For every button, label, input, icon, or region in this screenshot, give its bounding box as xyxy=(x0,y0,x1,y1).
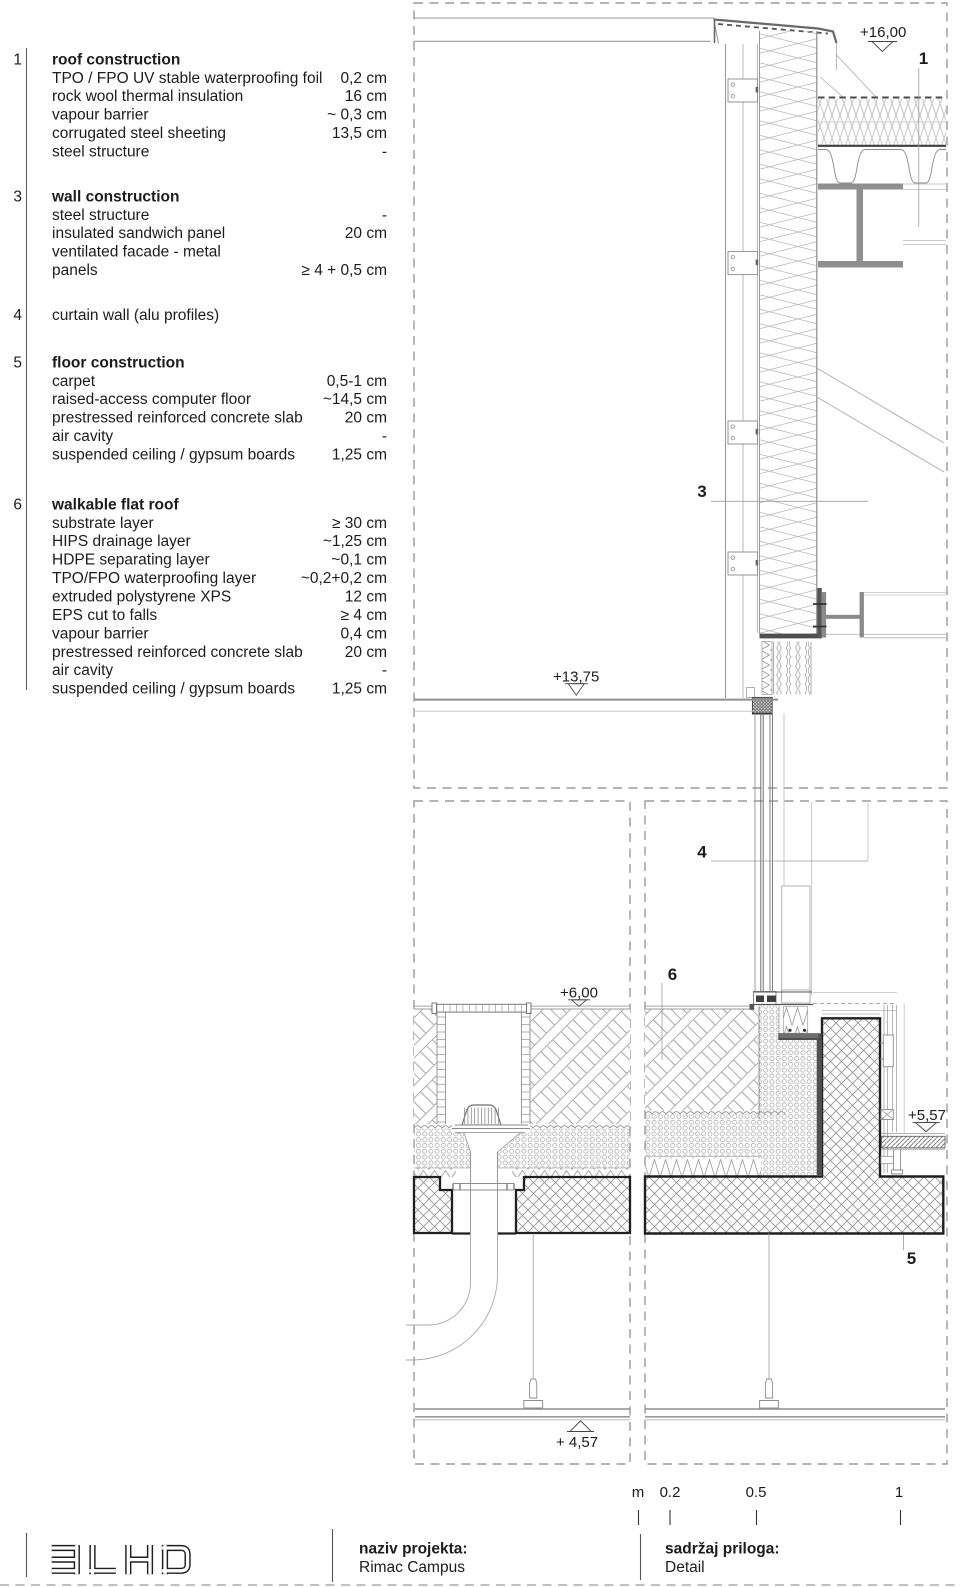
svg-text:suspended ceiling / gypsum boa: suspended ceiling / gypsum boards xyxy=(52,681,295,698)
svg-text:substrate layer: substrate layer xyxy=(52,515,154,532)
svg-text:sadržaj priloga:: sadržaj priloga: xyxy=(665,1541,780,1558)
svg-text:m: m xyxy=(632,1484,645,1501)
svg-text:~ 0,3 cm: ~ 0,3 cm xyxy=(327,107,387,124)
svg-text:+6,00: +6,00 xyxy=(560,985,598,1002)
svg-text:raised-access computer floor: raised-access computer floor xyxy=(52,391,251,408)
svg-text:4: 4 xyxy=(697,843,707,862)
svg-text:+13,75: +13,75 xyxy=(553,669,599,686)
svg-text:floor construction: floor construction xyxy=(52,354,185,371)
svg-text:air cavity: air cavity xyxy=(52,662,113,679)
svg-text:HIPS drainage layer: HIPS drainage layer xyxy=(52,533,191,550)
svg-text:20 cm: 20 cm xyxy=(345,644,387,661)
svg-text:5: 5 xyxy=(907,1249,916,1268)
svg-text:0,5-1 cm: 0,5-1 cm xyxy=(327,373,387,390)
svg-text:6: 6 xyxy=(668,965,677,984)
svg-text:vapour barrier: vapour barrier xyxy=(52,625,149,642)
svg-text:roof construction: roof construction xyxy=(52,51,180,68)
svg-text:6: 6 xyxy=(13,496,22,513)
svg-text:prestressed reinforced concret: prestressed reinforced concrete slab xyxy=(52,644,303,661)
svg-text:-: - xyxy=(382,144,387,161)
svg-text:~14,5 cm: ~14,5 cm xyxy=(323,391,387,408)
svg-text:+5,57: +5,57 xyxy=(908,1107,946,1124)
svg-text:1,25 cm: 1,25 cm xyxy=(332,681,387,698)
svg-text:3: 3 xyxy=(697,482,706,501)
svg-text:wall construction: wall construction xyxy=(51,188,179,205)
svg-text:prestressed reinforced concret: prestressed reinforced concrete slab xyxy=(52,410,303,427)
svg-text:rock wool thermal insulation: rock wool thermal insulation xyxy=(52,88,243,105)
svg-text:+ 4,57: + 4,57 xyxy=(556,1434,598,1451)
svg-text:naziv projekta:: naziv projekta: xyxy=(359,1541,468,1558)
svg-text:12 cm: 12 cm xyxy=(345,589,387,606)
svg-text:1: 1 xyxy=(919,49,928,68)
svg-text:suspended ceiling / gypsum boa: suspended ceiling / gypsum boards xyxy=(52,447,295,464)
svg-text:~0,2+0,2 cm: ~0,2+0,2 cm xyxy=(301,570,387,587)
svg-text:~1,25 cm: ~1,25 cm xyxy=(323,533,387,550)
svg-text:walkable flat roof: walkable flat roof xyxy=(51,496,179,513)
svg-text:0.5: 0.5 xyxy=(746,1484,767,1501)
svg-text:-: - xyxy=(382,207,387,224)
svg-text:≥ 4 + 0,5 cm: ≥ 4 + 0,5 cm xyxy=(301,262,387,279)
svg-text:HDPE separating layer: HDPE separating layer xyxy=(52,552,210,569)
svg-text:20 cm: 20 cm xyxy=(345,410,387,427)
svg-text:insulated sandwich panel: insulated sandwich panel xyxy=(52,225,225,242)
svg-text:4: 4 xyxy=(13,307,22,324)
svg-text:5: 5 xyxy=(13,354,22,371)
svg-text:1,25 cm: 1,25 cm xyxy=(332,447,387,464)
svg-text:Detail: Detail xyxy=(665,1559,705,1576)
svg-text:+16,00: +16,00 xyxy=(860,24,906,41)
svg-text:0,2 cm: 0,2 cm xyxy=(340,70,387,87)
svg-text:3: 3 xyxy=(13,188,22,205)
svg-text:-: - xyxy=(382,662,387,679)
svg-text:0,4 cm: 0,4 cm xyxy=(340,625,387,642)
svg-text:20 cm: 20 cm xyxy=(345,225,387,242)
svg-text:TPO/FPO waterproofing layer: TPO/FPO waterproofing layer xyxy=(52,570,256,587)
svg-text:air cavity: air cavity xyxy=(52,428,113,445)
svg-text:-: - xyxy=(382,428,387,445)
svg-text:~0,1 cm: ~0,1 cm xyxy=(331,552,387,569)
svg-text:EPS cut to falls: EPS cut to falls xyxy=(52,607,157,624)
svg-text:vapour barrier: vapour barrier xyxy=(52,107,149,124)
svg-text:curtain wall (alu profiles): curtain wall (alu profiles) xyxy=(52,307,219,324)
svg-text:steel structure: steel structure xyxy=(52,207,149,224)
svg-text:≥ 30 cm: ≥ 30 cm xyxy=(332,515,387,532)
svg-text:Rimac Campus: Rimac Campus xyxy=(359,1559,465,1576)
svg-text:≥ 4 cm: ≥ 4 cm xyxy=(341,607,387,624)
svg-text:1: 1 xyxy=(13,51,22,68)
svg-text:carpet: carpet xyxy=(52,373,96,390)
svg-text:0.2: 0.2 xyxy=(660,1484,681,1501)
svg-text:corrugated steel sheeting: corrugated steel sheeting xyxy=(52,125,226,142)
svg-text:1: 1 xyxy=(895,1484,903,1501)
svg-text:16 cm: 16 cm xyxy=(345,88,387,105)
svg-text:ventilated facade - metal: ventilated facade - metal xyxy=(52,244,221,261)
svg-text:panels: panels xyxy=(52,262,98,279)
svg-text:extruded polystyrene XPS: extruded polystyrene XPS xyxy=(52,589,231,606)
svg-text:TPO / FPO UV stable waterproof: TPO / FPO UV stable waterproofing foil xyxy=(52,70,323,87)
svg-text:13,5 cm: 13,5 cm xyxy=(332,125,387,142)
svg-text:steel structure: steel structure xyxy=(52,144,149,161)
